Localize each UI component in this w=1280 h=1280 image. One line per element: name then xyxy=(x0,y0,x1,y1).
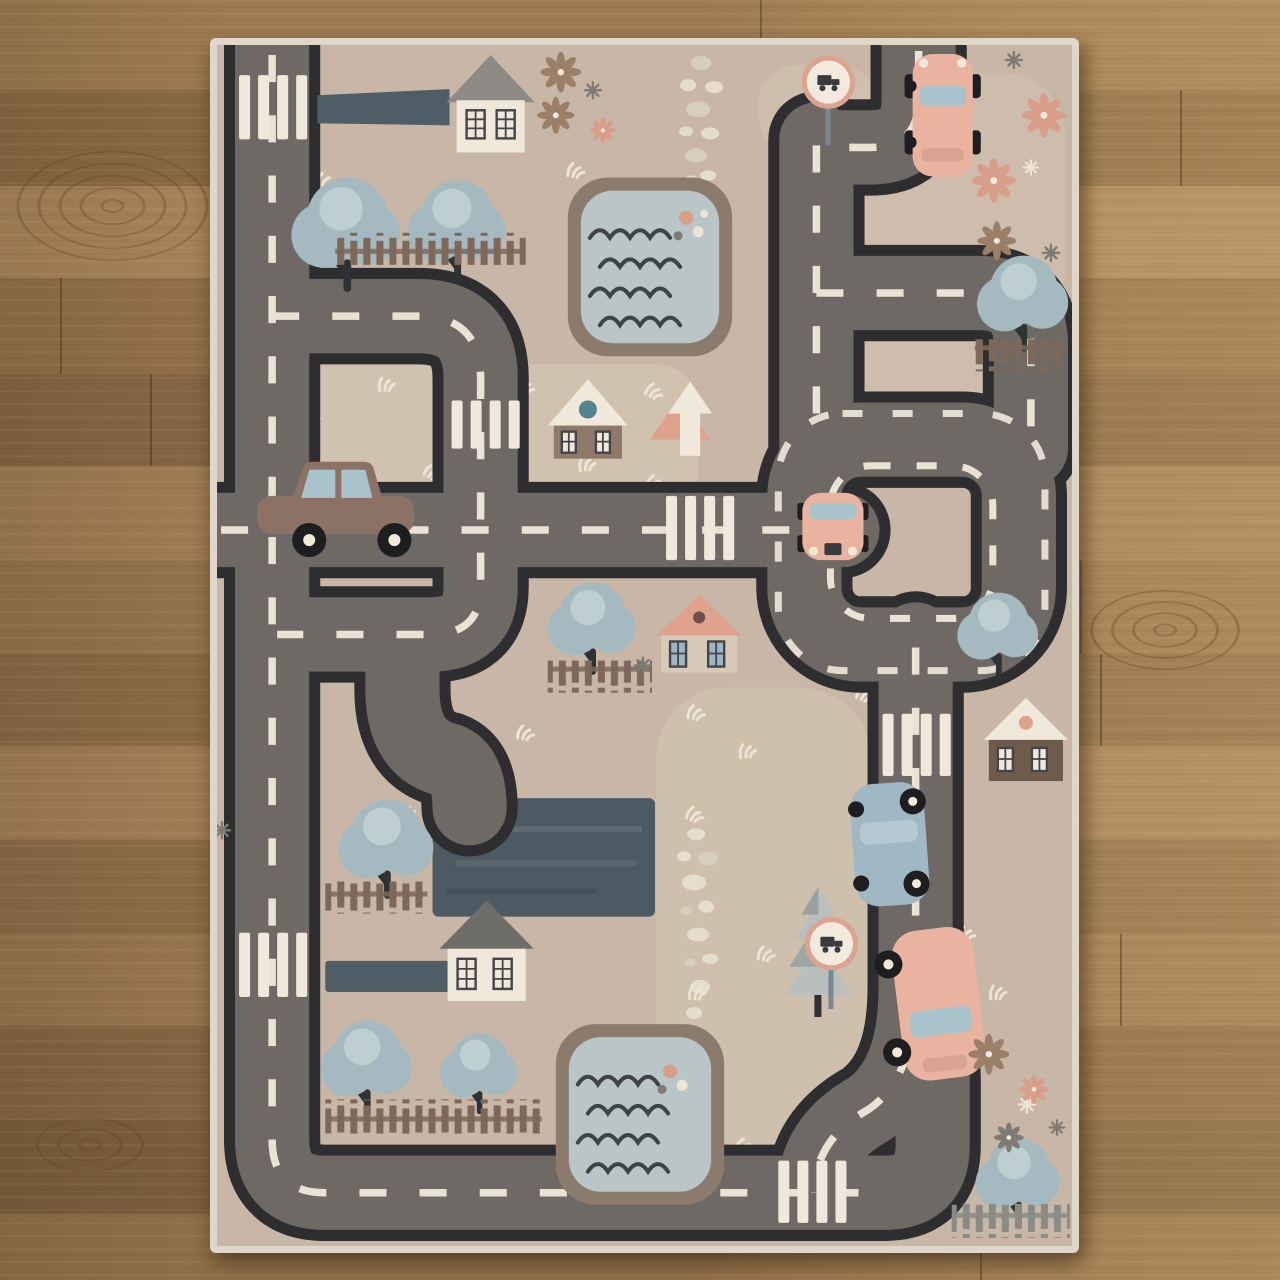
play-rug xyxy=(210,38,1079,1253)
pebble xyxy=(702,954,718,964)
pebble xyxy=(680,907,692,915)
snowflake-flower xyxy=(635,658,651,674)
snowflake-flower xyxy=(1006,52,1022,68)
car-pink-roundabout xyxy=(797,493,868,560)
crosswalk-bar xyxy=(277,933,288,997)
crosswalk-bar xyxy=(452,400,463,448)
pebble xyxy=(682,874,706,890)
pebble xyxy=(680,79,696,91)
daisy-flower xyxy=(590,118,615,143)
crosswalk-bar xyxy=(296,933,307,997)
crosswalk-bar xyxy=(258,75,269,139)
pebble xyxy=(691,56,711,70)
crosswalk-bar xyxy=(921,714,932,776)
plank-seam xyxy=(1100,654,1102,746)
snowflake-flower xyxy=(585,82,601,98)
crosswalk-bar xyxy=(277,75,288,139)
plank-seam xyxy=(60,278,62,374)
pebble xyxy=(698,901,714,913)
crosswalk-bar xyxy=(816,1161,827,1223)
crosswalk-bar xyxy=(666,496,677,560)
plank-seam xyxy=(1120,934,1122,1026)
crosswalk-bar xyxy=(509,400,520,448)
snowflake-flower xyxy=(1043,245,1059,261)
wood-knot xyxy=(30,1115,150,1175)
pebble xyxy=(684,959,696,967)
crosswalk-bar xyxy=(835,1161,846,1223)
crosswalk-bar xyxy=(239,933,250,997)
pebble xyxy=(686,101,710,117)
snowflake-flower xyxy=(1050,1120,1064,1134)
wood-knot xyxy=(1090,590,1240,670)
crosswalk-bar xyxy=(723,496,734,560)
daisy-flower xyxy=(969,1034,1009,1074)
crosswalk-bar xyxy=(940,714,951,776)
pebble xyxy=(677,851,691,861)
daisy-flower xyxy=(1022,94,1065,137)
pebble xyxy=(701,127,719,139)
car-pink-top-right xyxy=(905,54,981,177)
crosswalk-bar xyxy=(296,75,307,139)
crosswalk-bar xyxy=(883,714,894,776)
daisy-flower xyxy=(1019,1075,1048,1104)
pebble xyxy=(687,928,709,942)
plank-seam xyxy=(1080,560,1082,654)
pebble xyxy=(687,828,705,840)
crosswalk-bar xyxy=(685,496,696,560)
wood-knot xyxy=(15,150,210,262)
pebble xyxy=(705,81,723,93)
crosswalk-bar xyxy=(239,75,250,139)
plank-seam xyxy=(150,374,152,466)
daisy-flower xyxy=(972,159,1015,202)
crosswalk-bar xyxy=(902,714,913,776)
rug-illustration xyxy=(217,45,1072,1246)
car-blue-top xyxy=(846,780,933,908)
pond xyxy=(556,1024,724,1205)
pond xyxy=(568,178,732,357)
crosswalk-bar xyxy=(704,496,715,560)
crosswalk-bar xyxy=(797,1161,808,1223)
snowflake-flower xyxy=(1024,160,1038,174)
pebble xyxy=(698,851,718,865)
crosswalk-bar xyxy=(471,400,482,448)
daisy-flower xyxy=(978,222,1016,260)
daisy-flower xyxy=(541,52,581,92)
pebble xyxy=(686,1007,702,1019)
daisy-flower xyxy=(538,97,574,133)
crosswalk-bar xyxy=(778,1161,789,1223)
plank-seam xyxy=(1180,90,1182,186)
daisy-flower xyxy=(994,1123,1023,1152)
crosswalk-bar xyxy=(490,400,501,448)
crosswalk-bar xyxy=(258,933,269,997)
pebble xyxy=(679,126,693,136)
pebble xyxy=(685,148,707,162)
